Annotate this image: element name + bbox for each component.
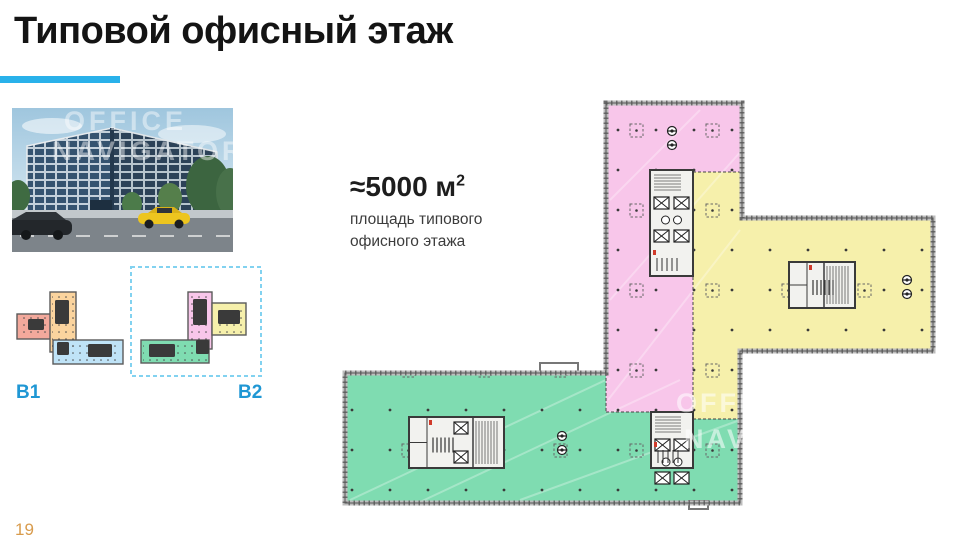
mini-core [149,344,175,357]
mini-core [193,299,207,325]
elevator-box [454,422,468,434]
column-symbol [668,127,677,136]
green-core [409,417,504,468]
floor-plans-canvas: OFFICENAVIGATOR [0,0,975,552]
yellow-core [789,262,855,308]
floor-plan-large: OFFICENAVIGATOR [345,103,933,509]
mini-core [218,310,240,324]
elevator-box [655,439,670,451]
fire-mark [654,442,657,447]
plan-watermark: NAVIGATOR [684,424,869,454]
plan-watermark: OFFICE [676,388,793,418]
column-symbol [903,276,912,285]
elevator-box [654,197,669,209]
pink-core [650,170,693,276]
elevator-box [674,230,689,242]
mini-plan-b1 [17,292,123,364]
mini-core [88,344,112,357]
fire-mark [429,420,432,425]
elevator-box [674,197,689,209]
mini-plan-b2 [131,267,261,376]
column-symbol [903,290,912,299]
elevator-box [454,451,468,463]
elevator-box [655,472,670,484]
mini-core [28,319,44,330]
mini-core [55,300,69,324]
column-symbol [558,432,567,441]
elevator-box [674,472,689,484]
mini-core [57,342,69,355]
elevator-box [654,230,669,242]
fire-mark [809,265,812,270]
column-symbol [668,141,677,150]
column-symbol [558,446,567,455]
fire-mark [653,250,656,255]
mini-core [196,340,209,354]
